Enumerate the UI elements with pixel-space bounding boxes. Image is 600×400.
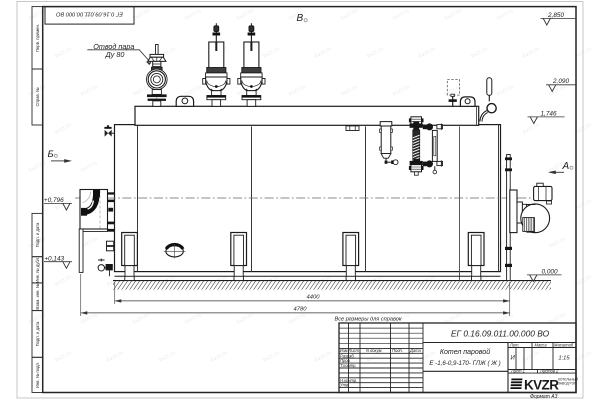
svg-text:А: А (562, 161, 570, 172)
svg-text:1:15: 1:15 (558, 356, 570, 362)
svg-text:4780: 4780 (294, 307, 308, 313)
svg-text:Утв.: Утв. (340, 383, 349, 388)
svg-text:N докум.: N докум. (366, 348, 383, 353)
svg-text:0,000: 0,000 (542, 268, 558, 275)
svg-text:ЕГ 0.16.09.011.00.000 ВО: ЕГ 0.16.09.011.00.000 ВО (56, 11, 123, 17)
svg-text:Взам. инв. №: Взам. инв. № (35, 283, 40, 309)
svg-text:+0,143: +0,143 (44, 255, 64, 262)
svg-text:Инв. № подл.: Инв. № подл. (35, 362, 40, 388)
svg-text:Подп.: Подп. (392, 348, 403, 353)
svg-text:ЕГ 0.16.09.011.00.000 ВО: ЕГ 0.16.09.011.00.000 ВО (451, 328, 550, 338)
svg-text:Лит.: Лит. (509, 342, 520, 347)
svg-text:Инв. № дубл.: Инв. № дубл. (35, 257, 40, 283)
svg-text:Т.контр.: Т.контр. (340, 363, 357, 368)
svg-text:2,090: 2,090 (552, 78, 569, 85)
svg-text:Котел паровой: Котел паровой (440, 348, 490, 356)
svg-text:Перв. примен.: Перв. примен. (35, 24, 40, 52)
svg-text:Масса: Масса (535, 342, 548, 347)
svg-text:ЗАВОД РЭП: ЗАВОД РЭП (558, 382, 577, 386)
svg-text:Формат А3: Формат А3 (530, 394, 558, 400)
svg-text:Все размеры для справок: Все размеры для справок (335, 317, 402, 323)
svg-text:1,746: 1,746 (541, 110, 557, 117)
svg-text:Е -1,6-0,9-170- ГЛЖ ( Ж ): Е -1,6-0,9-170- ГЛЖ ( Ж ) (429, 360, 500, 367)
svg-text:Подп. и дата: Подп. и дата (35, 321, 40, 346)
svg-text:Масштаб: Масштаб (554, 342, 574, 347)
svg-text:Листов 2: Листов 2 (539, 369, 559, 374)
svg-text:Лист 1: Лист 1 (510, 369, 525, 374)
svg-text:Справ. №: Справ. № (35, 87, 40, 107)
svg-text:И: И (511, 356, 516, 362)
svg-text:В: В (297, 13, 304, 24)
svg-text:Подп. и дата: Подп. и дата (35, 222, 40, 247)
svg-text:2,850: 2,850 (547, 12, 564, 19)
svg-text:Б: Б (48, 149, 54, 160)
svg-text:Ду 80: Ду 80 (105, 50, 125, 59)
svg-text:4400: 4400 (307, 295, 321, 301)
svg-text:KVZR: KVZR (524, 378, 559, 393)
svg-text:Дата: Дата (409, 348, 422, 353)
svg-text:+0,796: +0,796 (44, 197, 64, 204)
